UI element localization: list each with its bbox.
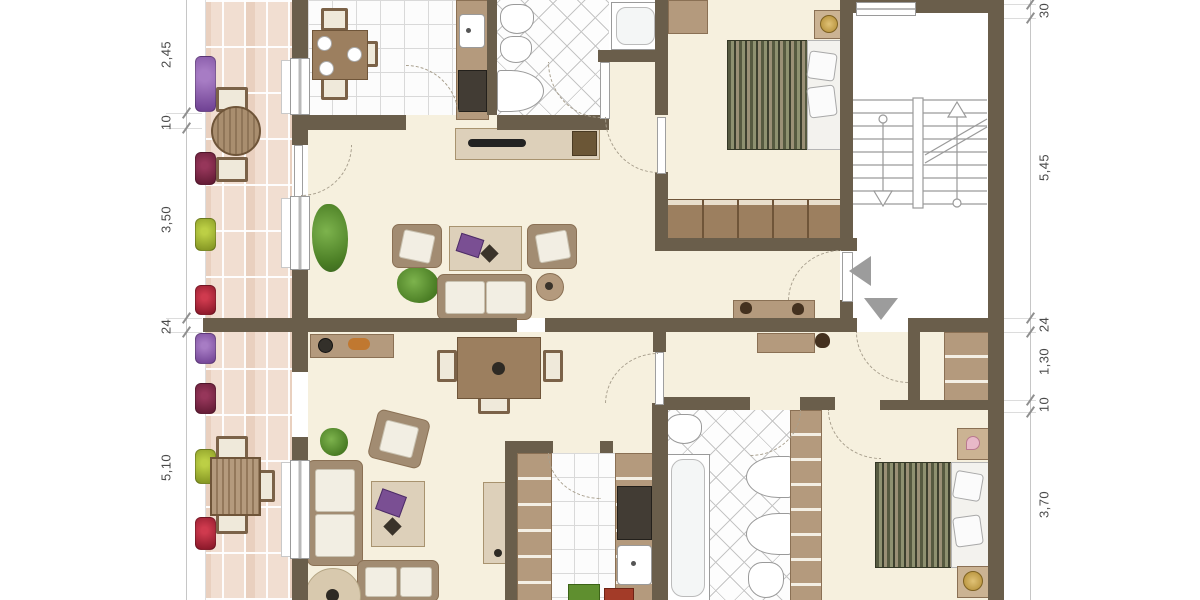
toilet: [666, 414, 702, 444]
closet-shelf: [790, 410, 822, 600]
kitchen-sink: [459, 14, 485, 48]
wall: [505, 441, 517, 600]
dim-label-left-1: 2,45: [159, 32, 174, 78]
cutting-board: [604, 588, 634, 600]
terrace-divider-wall: [203, 318, 292, 332]
dining-chair: [321, 8, 348, 31]
stairwell-window: [856, 2, 916, 16]
plate: [347, 47, 362, 62]
cat-figure: [740, 302, 752, 314]
bed: [727, 40, 811, 150]
armchair: [392, 224, 442, 268]
door-leaf: [600, 62, 610, 119]
wall: [292, 113, 308, 145]
pillow: [952, 470, 984, 502]
plate: [317, 36, 332, 51]
window: [290, 460, 310, 559]
pillow: [806, 50, 838, 82]
wall: [487, 0, 497, 115]
decor-box: [572, 131, 597, 156]
wall: [800, 397, 835, 410]
terrace-chair: [216, 157, 248, 182]
dimension-line-right: [1030, 0, 1031, 600]
wardrobe: [667, 199, 842, 240]
pillow: [952, 514, 984, 548]
wall: [655, 238, 857, 251]
wall: [652, 403, 668, 600]
floor-lamp: [326, 589, 339, 600]
window: [290, 196, 310, 270]
bed: [875, 462, 955, 568]
kitchen-counter: [517, 453, 552, 600]
lower-entrance-arrow-icon: [864, 298, 898, 320]
wall: [292, 318, 517, 332]
dim-label-left-3: 3,50: [159, 197, 174, 243]
flower-box: [195, 383, 216, 414]
dim-label-right-4: 1,30: [1037, 339, 1052, 385]
decor-bowl: [318, 338, 333, 353]
dim-label-right-6: 3,70: [1037, 482, 1052, 528]
floor-plan-canvas: 2,45 10 3,50 24 5,10 30 5,45 24 1,30 10 …: [0, 0, 1200, 600]
wall: [655, 0, 668, 115]
upper-entrance-arrow-icon: [849, 256, 871, 286]
dining-chair: [437, 350, 457, 382]
toilet: [500, 4, 534, 34]
stove: [458, 70, 487, 112]
dim-label-left-4: 24: [159, 304, 174, 350]
pillow: [806, 84, 838, 118]
cat-figure: [815, 333, 830, 348]
dining-table: [457, 337, 541, 399]
dining-chair: [321, 77, 348, 100]
flower-box: [195, 56, 216, 112]
dim-label-right-2: 5,45: [1037, 145, 1052, 191]
wall: [840, 213, 853, 250]
bedside-lamp: [963, 571, 983, 591]
hall-wardrobe: [944, 332, 990, 403]
wall: [292, 557, 308, 600]
wall: [292, 437, 308, 460]
wall: [655, 397, 750, 410]
sofa: [307, 460, 363, 566]
bathtub: [666, 454, 710, 600]
dim-label-left-2: 10: [159, 100, 174, 146]
wall: [292, 0, 308, 58]
tv: [468, 139, 526, 147]
wall: [308, 115, 406, 130]
plant: [312, 204, 348, 272]
wall: [840, 300, 853, 318]
wall: [653, 332, 666, 352]
decor-item: [348, 338, 370, 350]
armchair: [527, 224, 577, 269]
wall: [292, 332, 308, 372]
bidet: [500, 36, 532, 63]
cutting-board: [568, 584, 600, 600]
flower-box: [195, 218, 216, 251]
console-table: [757, 333, 815, 353]
wall: [598, 50, 662, 62]
flower-box: [195, 285, 216, 315]
flower-box: [195, 517, 216, 550]
plant: [320, 428, 348, 456]
wall: [505, 441, 553, 453]
flower-box: [195, 152, 216, 185]
door-leaf: [657, 117, 666, 174]
shell-decor: [966, 436, 980, 450]
terrace-round-table: [211, 106, 261, 156]
kitchen-sink: [617, 545, 652, 585]
wall: [840, 0, 853, 213]
loveseat: [357, 560, 439, 600]
wall: [880, 400, 988, 410]
flower-box: [195, 333, 216, 364]
plate: [319, 61, 334, 76]
side-stool: [536, 273, 564, 301]
wall: [988, 0, 1004, 600]
stove: [617, 486, 652, 540]
wall: [600, 441, 613, 453]
dim-label-right-5: 10: [1037, 382, 1052, 428]
terrace-table: [210, 457, 261, 516]
dining-chair: [543, 350, 563, 382]
dimension-line-left: [186, 0, 187, 600]
dim-label-right-1: 30: [1037, 0, 1052, 34]
cat-figure: [792, 303, 804, 315]
sofa: [437, 274, 532, 320]
wall: [908, 318, 1004, 332]
dresser: [668, 0, 708, 34]
faucet: [466, 28, 471, 33]
dim-label-left-5: 5,10: [159, 445, 174, 491]
bedside-lamp: [820, 15, 838, 33]
wall: [908, 332, 920, 403]
plant: [397, 267, 439, 303]
wall: [545, 318, 857, 332]
bidet: [748, 562, 784, 598]
bathtub: [611, 2, 660, 50]
staircase: [853, 13, 990, 330]
window: [290, 58, 310, 115]
